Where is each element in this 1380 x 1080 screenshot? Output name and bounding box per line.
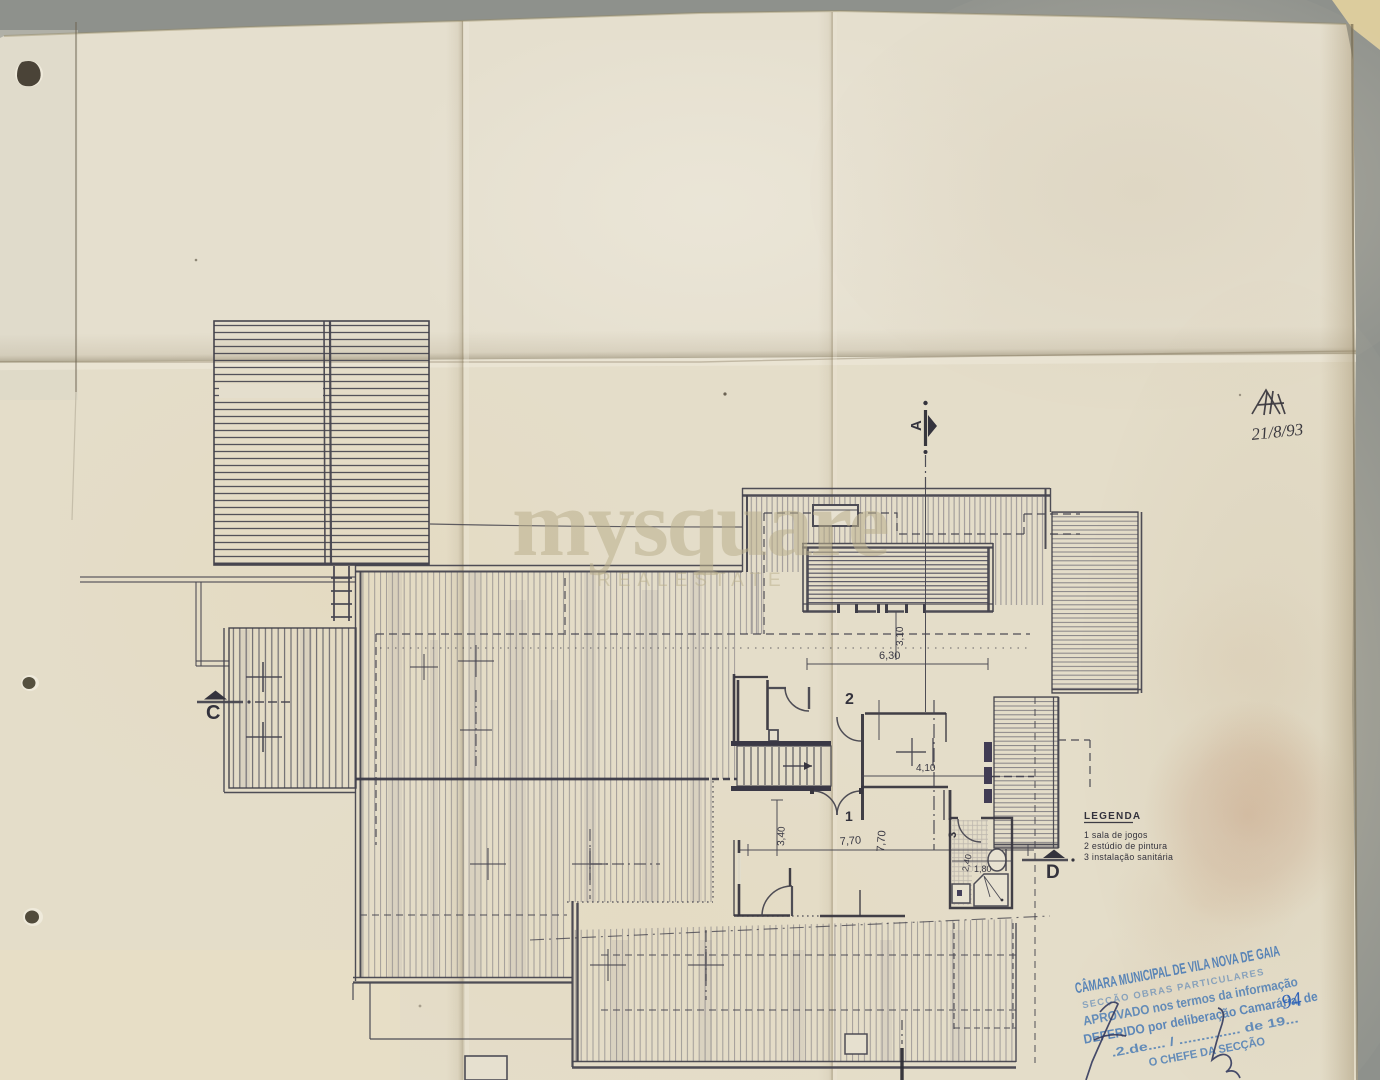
svg-text:3: 3 (947, 832, 959, 838)
svg-text:mysquare: mysquare (512, 472, 888, 576)
svg-text:A: A (908, 420, 925, 431)
svg-text:3 instalação sanitária: 3 instalação sanitária (1084, 852, 1173, 862)
svg-text:2 estúdio de pintura: 2 estúdio de pintura (1084, 841, 1167, 851)
svg-text:1 sala de jogos: 1 sala de jogos (1084, 830, 1148, 840)
svg-text:6,30: 6,30 (879, 650, 900, 662)
svg-text:REALESTATE: REALESTATE (597, 570, 788, 591)
svg-text:7,70: 7,70 (875, 830, 888, 852)
svg-text:D: D (1046, 862, 1060, 883)
svg-text:C: C (206, 702, 220, 724)
svg-text:7,70: 7,70 (839, 835, 861, 848)
svg-text:3,40: 3,40 (776, 826, 788, 846)
svg-text:1: 1 (845, 808, 853, 824)
svg-text:LEGENDA: LEGENDA (1084, 811, 1141, 822)
svg-text:3,10: 3,10 (895, 626, 906, 646)
svg-text:2: 2 (845, 691, 854, 708)
svg-text:1,80: 1,80 (974, 864, 992, 874)
